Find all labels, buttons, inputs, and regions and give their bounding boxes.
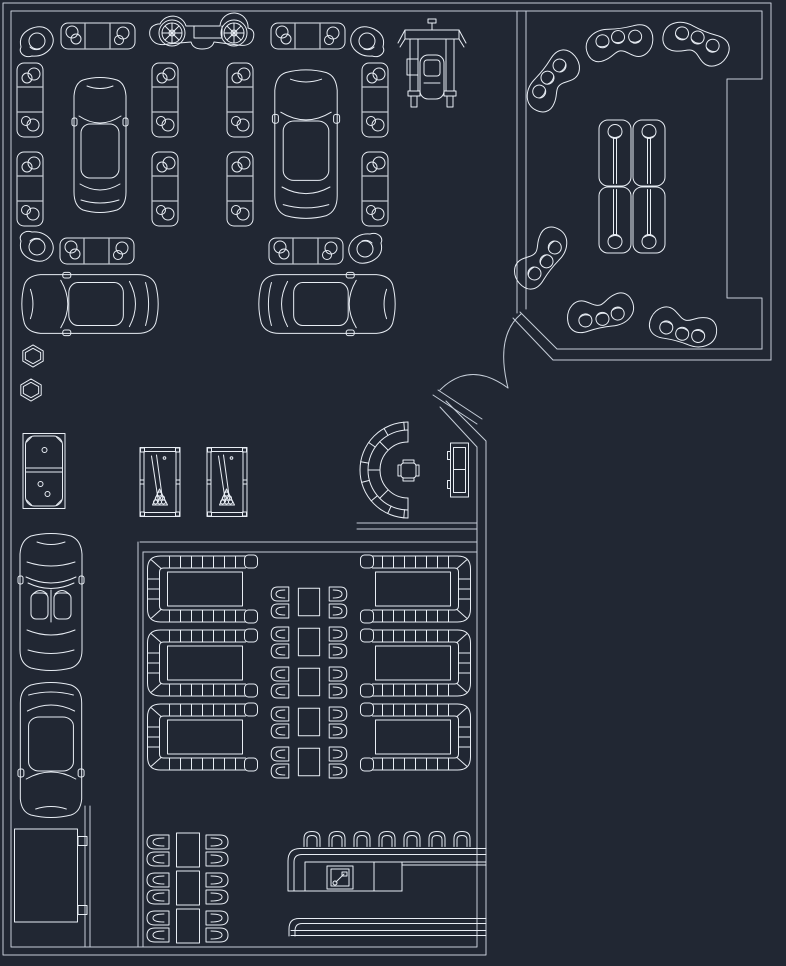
- bar-stool: [404, 832, 420, 847]
- planter-table-unit: [599, 187, 665, 253]
- storage-closet: [15, 829, 88, 922]
- chair-pair: [147, 911, 169, 942]
- bar-counter-with-sink: [288, 849, 486, 892]
- booth-seating-with-table: [361, 703, 471, 771]
- chair-pair: [329, 747, 347, 778]
- dining-table: [298, 628, 319, 656]
- booth-seating-with-table: [148, 555, 258, 623]
- coupe-car-top-view: [72, 78, 128, 213]
- booth-seating-with-table: [148, 629, 258, 697]
- curved-lounge-sofa: [659, 16, 733, 70]
- chair-pair: [206, 835, 228, 866]
- sofa-3seat: [271, 23, 345, 49]
- curved-lounge-sofa: [647, 303, 720, 351]
- chair-pair: [147, 873, 169, 904]
- billiard-table: [140, 448, 180, 517]
- back-bar-counter: [289, 919, 486, 937]
- corner-armchair: [20, 231, 53, 261]
- sofa-3seat-vertical: [152, 152, 178, 226]
- sofa-3seat-vertical: [362, 152, 388, 226]
- sofa-3seat: [269, 238, 343, 264]
- sofa-3seat-vertical: [227, 63, 253, 137]
- bar-stool: [304, 832, 320, 847]
- curved-lounge-sofa: [520, 45, 586, 118]
- convertible-car-top-view: [18, 534, 84, 671]
- chair-pair: [271, 707, 289, 738]
- sofa-3seat-vertical: [362, 63, 388, 137]
- sofa-3seat-vertical: [227, 152, 253, 226]
- corner-armchair: [20, 27, 53, 57]
- bar-stool: [454, 832, 470, 847]
- dining-table: [298, 748, 319, 776]
- floor-plan-stage: [0, 0, 786, 966]
- wall: [520, 312, 762, 349]
- chair-pair: [271, 667, 289, 698]
- corner-armchair: [351, 27, 384, 57]
- booth-seating-with-table: [361, 555, 471, 623]
- coupe-car-top-view: [259, 272, 395, 335]
- sofa-3seat: [61, 23, 135, 49]
- door-swing-arc: [504, 314, 521, 388]
- chair-pair: [271, 747, 289, 778]
- booth-seating-with-table: [148, 703, 258, 771]
- entrance-double-door: [440, 314, 521, 390]
- walls: [3, 3, 771, 955]
- wall: [433, 395, 477, 424]
- coupe-car-top-view: [22, 272, 158, 335]
- bar-stool: [379, 832, 395, 847]
- chair-pair: [206, 873, 228, 904]
- chair-pair: [206, 911, 228, 942]
- chair-pair: [271, 627, 289, 658]
- curved-lounge-sofa: [564, 290, 636, 335]
- dining-table: [298, 708, 319, 736]
- sofa-3seat-vertical: [17, 63, 43, 137]
- hexagonal-side-table: [23, 345, 43, 367]
- car-on-service-lift: [398, 19, 466, 107]
- wall: [513, 318, 771, 360]
- furniture: [15, 13, 733, 943]
- curved-lounge-sofa: [508, 222, 574, 295]
- coupe-car-top-view: [272, 70, 339, 219]
- billiard-table: [207, 448, 247, 517]
- bar-stool: [429, 832, 445, 847]
- planter-table-unit: [599, 120, 665, 186]
- bar-stool: [329, 832, 345, 847]
- domino-game-table: [23, 434, 65, 509]
- dining-table: [177, 871, 200, 905]
- dining-table: [177, 833, 200, 867]
- wall: [3, 3, 771, 955]
- sofa-3seat-vertical: [152, 63, 178, 137]
- chair-pair: [147, 835, 169, 866]
- bar-stool: [354, 832, 370, 847]
- semicircular-reception-desk: [360, 422, 419, 518]
- chair-pair: [329, 667, 347, 698]
- booth-seating-with-table: [361, 629, 471, 697]
- dining-table: [177, 909, 200, 943]
- coupe-car-top-view: [18, 683, 84, 818]
- curved-lounge-sofa: [584, 23, 655, 64]
- chair-pair: [329, 707, 347, 738]
- chair-pair: [271, 587, 289, 618]
- chair-pair: [329, 627, 347, 658]
- sofa-3seat-vertical: [17, 152, 43, 226]
- hexagonal-side-table: [21, 379, 41, 401]
- chair-pair: [329, 587, 347, 618]
- corner-armchair: [349, 233, 382, 263]
- sofa-3seat: [60, 238, 134, 264]
- wall: [11, 11, 762, 947]
- reception-cabinet: [448, 443, 469, 497]
- dining-table: [298, 668, 319, 696]
- door-swing-arc: [440, 374, 508, 390]
- dining-table: [298, 588, 319, 616]
- floor-plan-drawing: [0, 0, 786, 966]
- classic-car-side-view: [150, 13, 254, 49]
